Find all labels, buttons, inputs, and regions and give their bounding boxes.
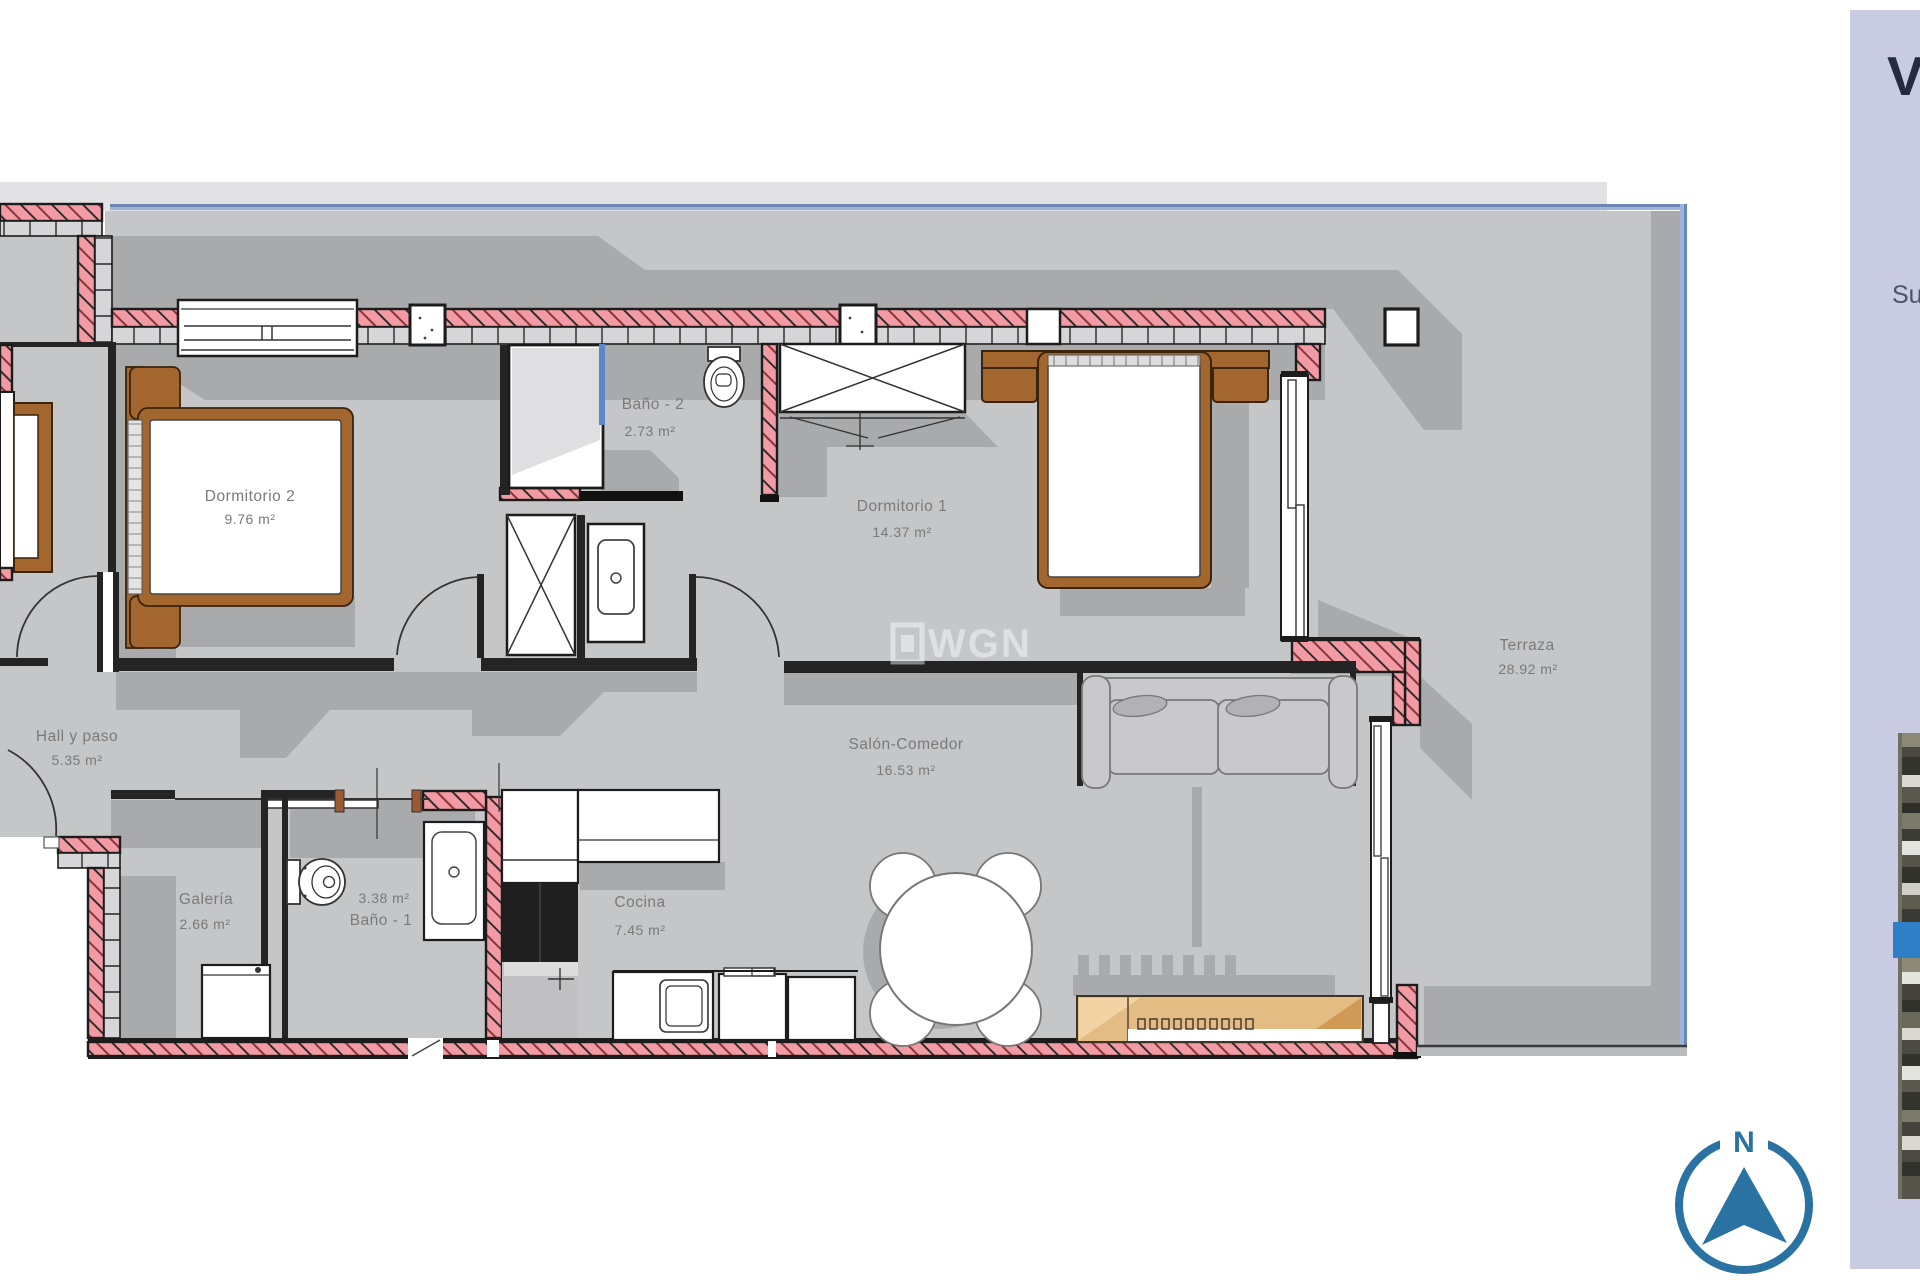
svg-text:2.73 m²: 2.73 m²	[625, 423, 676, 439]
svg-text:WGN: WGN	[928, 622, 1032, 666]
svg-text:Dormitorio 2: Dormitorio 2	[205, 488, 295, 505]
svg-text:Terraza: Terraza	[1499, 637, 1554, 654]
svg-text:7.45 m²: 7.45 m²	[615, 922, 666, 938]
svg-text:Cocina: Cocina	[614, 894, 665, 911]
svg-text:Galería: Galería	[179, 891, 233, 908]
svg-text:Hall y paso: Hall y paso	[36, 728, 118, 745]
svg-text:Dormitorio 1: Dormitorio 1	[857, 498, 947, 515]
svg-text:Su: Su	[1892, 281, 1920, 309]
svg-text:16.53 m²: 16.53 m²	[876, 762, 935, 778]
svg-text:5.35 m²: 5.35 m²	[52, 752, 103, 768]
svg-text:28.92 m²: 28.92 m²	[1498, 661, 1557, 677]
svg-text:9.76 m²: 9.76 m²	[225, 511, 276, 527]
svg-text:V: V	[1887, 45, 1920, 107]
svg-text:Baño - 2: Baño - 2	[622, 396, 685, 413]
svg-text:N: N	[1733, 1126, 1755, 1159]
svg-text:Salón-Comedor: Salón-Comedor	[848, 736, 963, 753]
svg-text:14.37 m²: 14.37 m²	[872, 524, 931, 540]
svg-text:2.66 m²: 2.66 m²	[180, 916, 231, 932]
svg-text:Baño - 1: Baño - 1	[350, 912, 413, 929]
svg-text:3.38 m²: 3.38 m²	[359, 890, 410, 906]
